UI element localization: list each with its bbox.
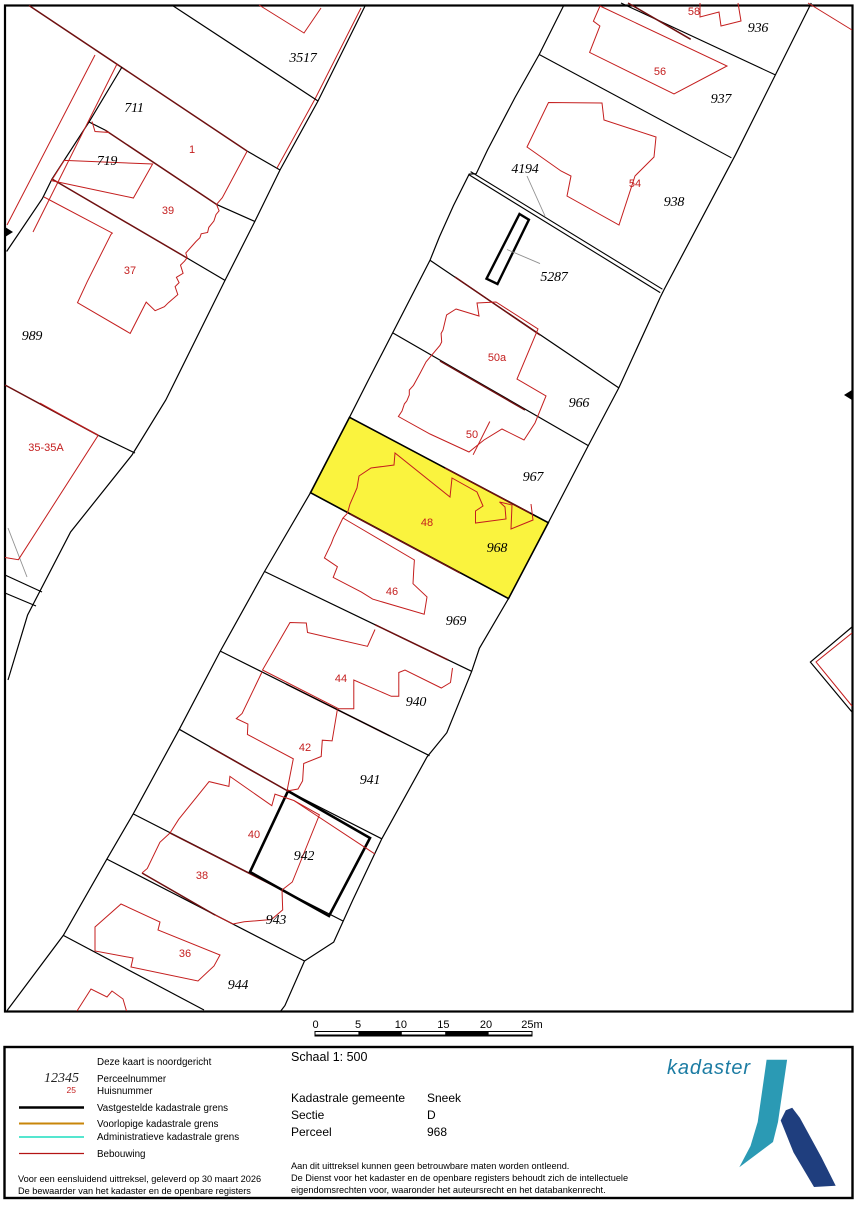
svg-text:Aan dit uittreksel kunnen geen: Aan dit uittreksel kunnen geen betrouwba…: [291, 1161, 569, 1171]
svg-text:35-35A: 35-35A: [28, 442, 64, 454]
svg-text:0: 0: [312, 1019, 318, 1031]
svg-text:942: 942: [294, 849, 315, 864]
svg-text:48: 48: [421, 517, 433, 529]
svg-text:941: 941: [360, 773, 380, 788]
svg-text:969: 969: [446, 614, 467, 629]
svg-text:50a: 50a: [488, 352, 507, 364]
svg-text:Schaal 1: 500: Schaal 1: 500: [291, 1050, 367, 1064]
svg-text:938: 938: [664, 195, 685, 210]
svg-text:968: 968: [427, 1125, 447, 1139]
svg-text:Bebouwing: Bebouwing: [97, 1149, 145, 1160]
svg-text:25m: 25m: [521, 1019, 542, 1031]
svg-text:Voor een eensluidend uittrekse: Voor een eensluidend uittreksel, gelever…: [18, 1174, 261, 1184]
svg-text:eigendomsrechten voor, waarond: eigendomsrechten voor, waaronder het aut…: [291, 1185, 606, 1195]
svg-text:De Dienst voor het kadaster en: De Dienst voor het kadaster en de openba…: [291, 1173, 628, 1183]
svg-text:Vastgestelde kadastrale grens: Vastgestelde kadastrale grens: [97, 1103, 228, 1114]
svg-text:944: 944: [228, 978, 249, 993]
svg-text:937: 937: [711, 92, 733, 107]
svg-text:20: 20: [480, 1019, 492, 1031]
svg-text:Sectie: Sectie: [291, 1108, 325, 1122]
svg-text:kadaster: kadaster: [667, 1057, 751, 1079]
svg-text:Kadastrale gemeente: Kadastrale gemeente: [291, 1091, 405, 1105]
svg-text:54: 54: [629, 178, 641, 190]
svg-text:936: 936: [748, 21, 769, 36]
svg-text:25: 25: [67, 1085, 77, 1095]
svg-text:Administratieve kadastrale gre: Administratieve kadastrale grens: [97, 1132, 239, 1143]
svg-text:10: 10: [395, 1019, 407, 1031]
svg-text:37: 37: [124, 265, 136, 277]
svg-text:5287: 5287: [540, 270, 568, 285]
svg-text:4194: 4194: [511, 162, 538, 177]
svg-text:943: 943: [266, 913, 287, 928]
svg-text:58: 58: [688, 6, 700, 18]
svg-text:Sneek: Sneek: [427, 1091, 462, 1105]
svg-text:46: 46: [386, 586, 398, 598]
svg-text:3517: 3517: [288, 51, 317, 66]
svg-text:36: 36: [179, 948, 191, 960]
svg-text:1: 1: [189, 144, 195, 156]
svg-text:40: 40: [248, 829, 260, 841]
svg-text:12345: 12345: [44, 1071, 79, 1086]
svg-text:Deze kaart is noordgericht: Deze kaart is noordgericht: [97, 1057, 212, 1068]
svg-text:D: D: [427, 1108, 436, 1122]
svg-text:50: 50: [466, 429, 478, 441]
svg-text:44: 44: [335, 673, 347, 685]
svg-text:Voorlopige kadastrale grens: Voorlopige kadastrale grens: [97, 1119, 219, 1130]
svg-text:940: 940: [406, 695, 427, 710]
svg-text:966: 966: [569, 396, 590, 411]
svg-text:Perceelnummer: Perceelnummer: [97, 1074, 167, 1085]
svg-text:719: 719: [97, 154, 118, 169]
svg-text:15: 15: [437, 1019, 449, 1031]
svg-text:967: 967: [523, 470, 545, 485]
svg-text:989: 989: [22, 329, 43, 344]
svg-text:968: 968: [487, 541, 508, 556]
svg-text:Huisnummer: Huisnummer: [97, 1086, 153, 1097]
svg-text:711: 711: [124, 101, 143, 116]
svg-text:39: 39: [162, 205, 174, 217]
svg-text:42: 42: [299, 742, 311, 754]
svg-text:5: 5: [355, 1019, 361, 1031]
svg-text:De bewaarder van het kadaster: De bewaarder van het kadaster en de open…: [18, 1186, 251, 1196]
svg-text:56: 56: [654, 66, 666, 78]
svg-text:Perceel: Perceel: [291, 1125, 332, 1139]
svg-text:38: 38: [196, 870, 208, 882]
